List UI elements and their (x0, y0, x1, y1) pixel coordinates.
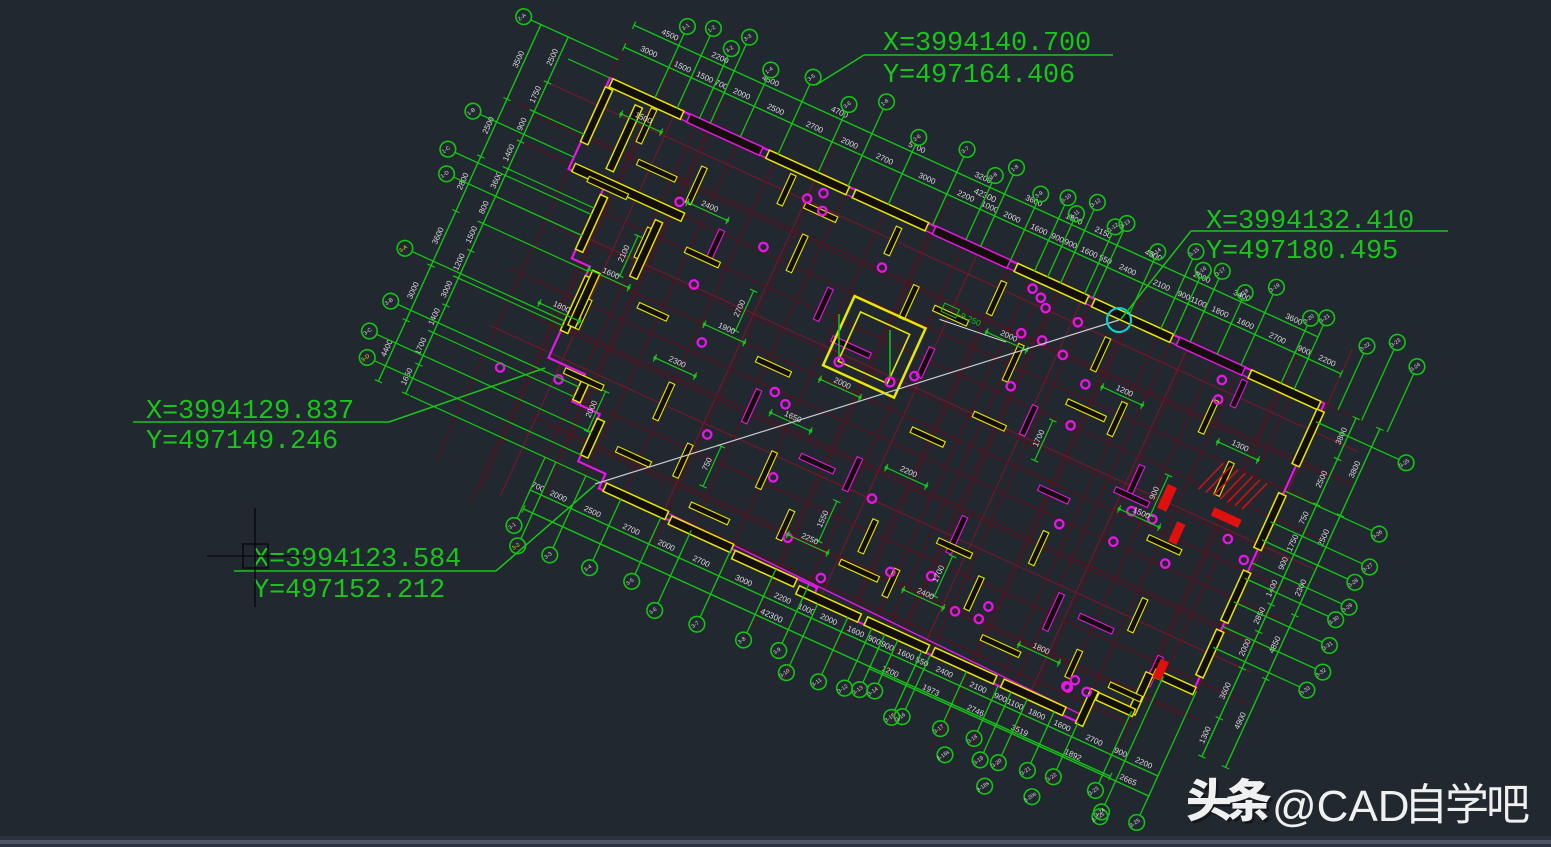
svg-text:Y=497164.406: Y=497164.406 (883, 61, 1075, 91)
svg-text:@CAD: @CAD (1272, 782, 1410, 831)
svg-text:Y=497149.246: Y=497149.246 (146, 427, 338, 457)
svg-text:Y=497180.495: Y=497180.495 (1206, 237, 1398, 267)
svg-text:Y=497152.212: Y=497152.212 (253, 576, 445, 606)
svg-text:X=3994132.410: X=3994132.410 (1206, 207, 1414, 237)
